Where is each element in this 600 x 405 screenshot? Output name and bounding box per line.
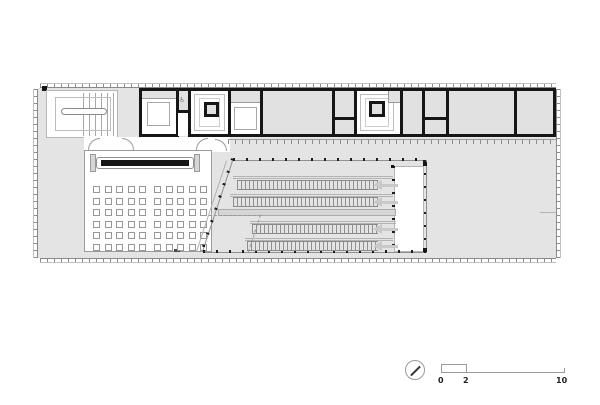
scale-label-2: 2 [463,376,469,385]
column-marker [391,165,394,168]
seat [105,244,112,251]
elevator-top-strip [142,91,176,99]
scale-label-0: 0 [438,376,444,385]
seat [200,209,207,216]
seat [139,209,146,216]
seat [93,244,100,251]
stair-flight-treads [247,241,378,251]
void-edge-east [426,160,427,253]
duct-square [234,107,257,130]
seat [177,209,184,216]
seat [177,198,184,205]
seat [166,198,173,205]
seat [166,221,173,228]
handrail [230,194,393,195]
seat [189,232,196,239]
seat [116,221,123,228]
service-room [514,88,556,137]
west-staircase [46,90,118,138]
seat [154,232,161,239]
direction-arrow-icon [373,224,382,234]
direction-arrow-icon [373,241,382,251]
plant-room-large [446,88,517,137]
seat [128,186,135,193]
scale-bar-tick [466,364,467,373]
facade-south [40,258,556,263]
column-marker [423,162,427,166]
direction-arrow-stem [382,184,398,187]
direction-arrow-stem [382,201,398,204]
seat [154,244,161,251]
handrail [233,176,393,177]
elevator-car [147,102,170,126]
seat [116,232,123,239]
facade-joint-line [540,212,556,213]
seat [189,221,196,228]
seat [116,198,123,205]
partition-wall [425,117,446,120]
seat [200,198,207,205]
service-room-strip [231,91,260,103]
north-stair-core-west [188,88,231,137]
handrail [250,221,396,222]
seat [105,209,112,216]
stair-subroom [388,91,400,103]
balustrade-posts-north [233,158,426,161]
seat [200,186,207,193]
seat [177,232,184,239]
seat [105,186,112,193]
floor-plan-canvas: ♿ [0,0,600,405]
seat [189,186,196,193]
gallery-glazing-line [228,139,556,144]
seat [116,209,123,216]
scale-bar-baseline [441,372,565,373]
service-room-split [422,88,449,137]
seat [139,221,146,228]
north-stair-core-east [354,88,403,137]
stair-shaft [369,101,385,117]
seat [116,244,123,251]
seat [189,244,196,251]
seat [128,232,135,239]
stair-flight-treads [233,197,378,207]
stair-flight-treads [237,180,378,190]
elevator-room [139,88,179,137]
service-room [228,88,263,137]
seat [177,186,184,193]
partition-wall [335,117,354,120]
scale-bar-step [441,364,466,365]
seat [116,186,123,193]
screen-end-post [194,154,200,172]
north-arrow-needle [410,366,421,377]
seat [105,221,112,228]
stair-flight-treads [252,224,378,234]
stair-shaft [204,102,219,117]
stair-landing-strip [394,166,424,252]
handrail [233,178,393,179]
scale-label-10: 10 [556,376,567,385]
seat [128,209,135,216]
handrail [245,238,393,239]
seat [93,198,100,205]
seat [189,209,196,216]
direction-arrow-icon [373,180,382,190]
seat [139,198,146,205]
seat [177,221,184,228]
hidden-edge-dashed [209,215,261,216]
seat [93,232,100,239]
seat [139,244,146,251]
stair-handrail [61,108,107,115]
direction-arrow-stem [382,228,398,231]
seat [128,221,135,228]
seat [154,221,161,228]
north-arrow-icon [405,360,425,380]
seat [166,232,173,239]
seat [139,232,146,239]
seat [166,244,173,251]
seat [128,244,135,251]
scale-bar-tick [564,368,565,373]
seat [93,186,100,193]
scale-bar-tick [441,364,442,373]
direction-arrow-icon [373,197,382,207]
direction-arrow-stem [382,245,398,248]
seat [128,198,135,205]
seat [154,186,161,193]
seat [105,232,112,239]
seat [166,186,173,193]
seat [93,221,100,228]
facade-east [556,89,561,258]
seat [189,198,196,205]
seat [139,186,146,193]
seat [154,209,161,216]
seat [166,209,173,216]
seat [105,198,112,205]
seat [177,244,184,251]
wheelchair-icon: ♿ [179,96,185,104]
column-marker [423,248,427,252]
seat [154,198,161,205]
seat [93,209,100,216]
projection-screen-core [101,160,189,166]
facade-west [33,89,38,258]
plant-room-large [260,88,335,137]
